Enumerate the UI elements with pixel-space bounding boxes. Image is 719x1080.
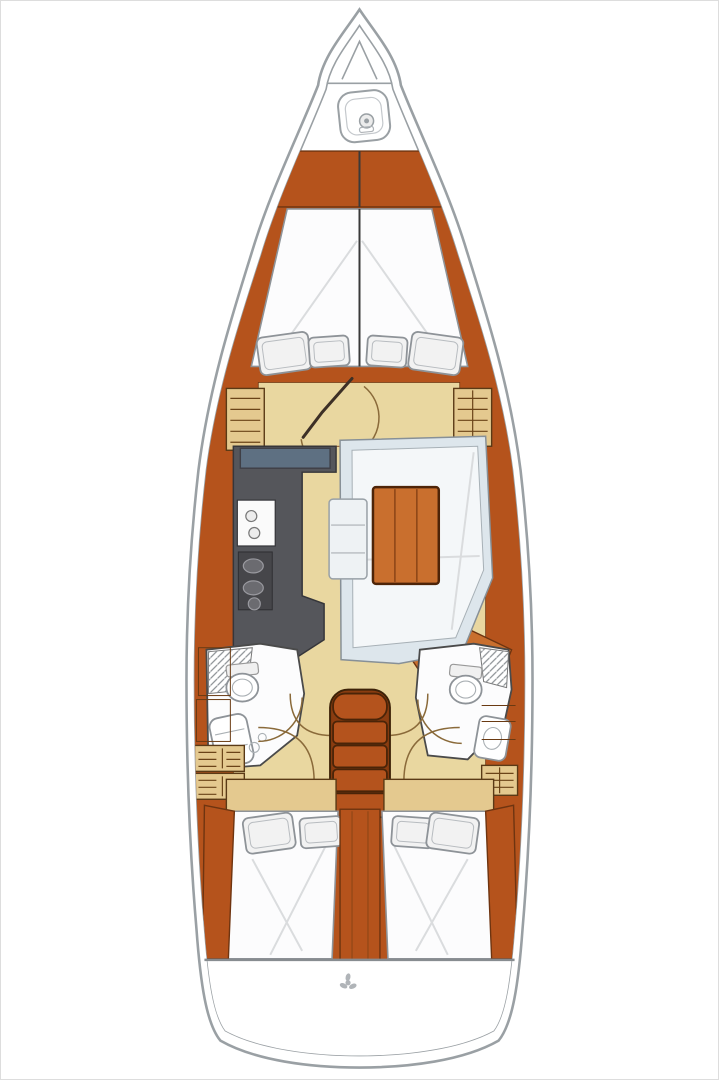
salon-bench (329, 499, 367, 579)
pillow (299, 816, 343, 849)
stern-area (190, 961, 529, 1071)
step (333, 769, 387, 791)
pillow (407, 331, 464, 376)
step (333, 721, 387, 743)
sink-icon (473, 715, 512, 762)
hull-wedge-port (202, 805, 234, 959)
stove-burner (243, 559, 263, 573)
aft-headboard-starboard (384, 779, 494, 811)
pillow (242, 812, 296, 854)
toilet-icon (449, 664, 482, 704)
step (333, 694, 387, 720)
anchor-locker (337, 89, 392, 144)
boat-layout-image (0, 0, 719, 1080)
pillow (256, 331, 313, 376)
galley-sink (237, 500, 275, 546)
pillow (308, 335, 350, 368)
stove-burner (248, 598, 260, 610)
galley-fridge-top (240, 448, 330, 468)
boat-plan-svg (1, 1, 718, 1079)
pillow (366, 335, 408, 368)
galley-stove (238, 552, 272, 610)
sink-basin (246, 511, 257, 522)
salon-table (373, 487, 439, 584)
hull-wedge-starboard (486, 805, 518, 959)
companionway-steps (330, 690, 390, 820)
step (333, 745, 387, 767)
sink-basin (249, 528, 260, 539)
pillow (426, 812, 480, 854)
head-starboard (416, 644, 512, 762)
aft-headboard-port (226, 779, 336, 811)
stove-burner (243, 581, 263, 595)
engine-compartment (340, 809, 380, 961)
forward-locker-port (226, 388, 264, 450)
